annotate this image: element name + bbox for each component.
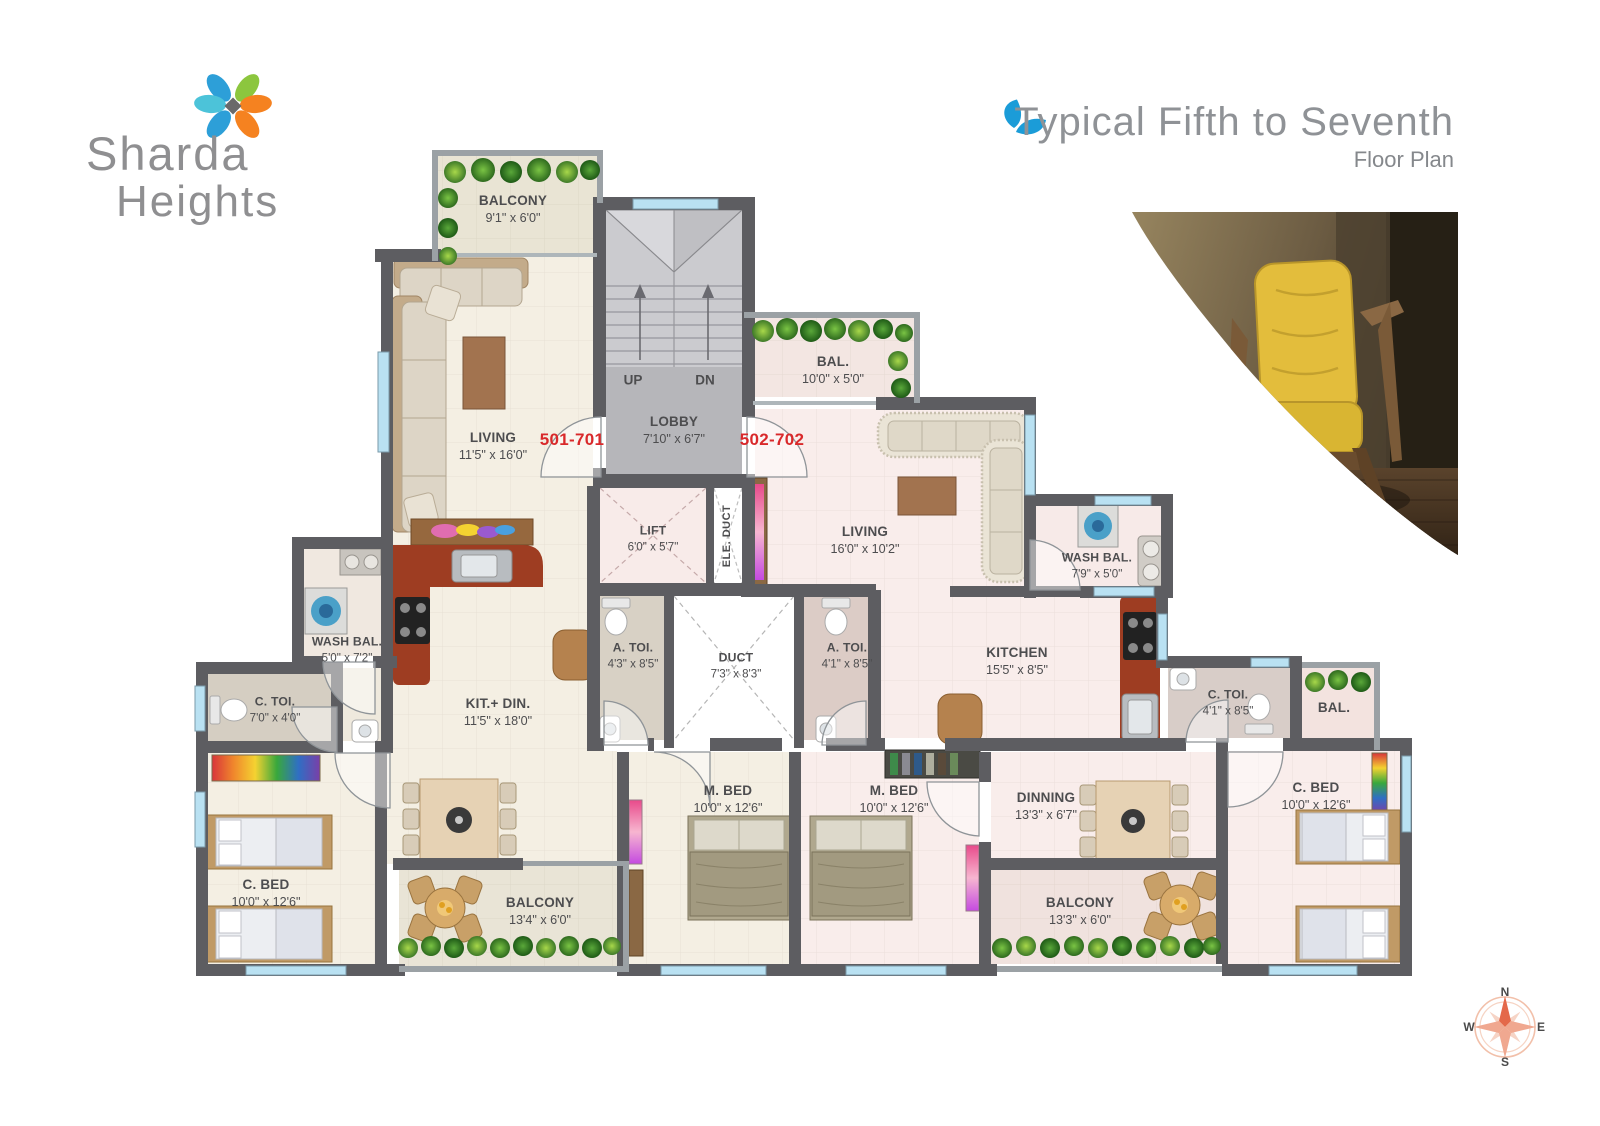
- brand-line1: Sharda: [86, 126, 279, 181]
- room-label-bal-502-right: BAL.: [1318, 699, 1350, 717]
- room-label-c-toi-501: C. TOI. 7'0" x 4'0": [250, 695, 301, 726]
- room-label-a-toi-502: A. TOI. 4'1" x 8'5": [822, 641, 873, 672]
- room-label-m-bed-502: M. BED 10'0" x 12'6": [859, 782, 928, 816]
- compass-west-label: W: [1463, 1020, 1474, 1034]
- room-label-wash-bal-502: WASH BAL. 7'9" x 5'0": [1062, 551, 1132, 582]
- room-label-kit-din-501: KIT.+ DIN. 11'5" x 18'0": [464, 695, 532, 729]
- compass-north-label: N: [1501, 985, 1510, 999]
- room-label-balcony-501-bottom: BALCONY 13'4" x 6'0": [506, 894, 574, 928]
- stairs-dn-label: DN: [695, 373, 715, 388]
- room-label-living-502: LIVING 16'0" x 10'2": [830, 523, 899, 557]
- unit-label-502-702: 502-702: [740, 430, 805, 450]
- room-label-c-toi-502: C. TOI. 4'1" x 8'5": [1203, 688, 1254, 719]
- room-label-duct: DUCT 7'3" x 8'3": [711, 651, 762, 682]
- room-label-living-501: LIVING 11'5" x 16'0": [459, 429, 527, 463]
- room-label-lift: LIFT 6'0" x 5'7": [628, 524, 679, 555]
- unit-label-501-701: 501-701: [540, 430, 605, 450]
- room-label-kitchen-502: KITCHEN 15'5" x 8'5": [986, 644, 1048, 678]
- page-title: Typical Fifth to Seventh Floor Plan: [1014, 100, 1454, 173]
- room-label-c-bed-502: C. BED 10'0" x 12'6": [1281, 779, 1350, 813]
- floor-plan-page: Sharda Heights Typical Fifth to Seventh …: [0, 0, 1600, 1126]
- room-label-balcony-502-bottom: BALCONY 13'3" x 6'0": [1046, 894, 1114, 928]
- room-label-m-bed-501: M. BED 10'0" x 12'6": [693, 782, 762, 816]
- compass-rose: [1474, 996, 1536, 1058]
- room-label-lobby: LOBBY 7'10" x 6'7": [643, 413, 705, 447]
- room-label-dinning-502: DINNING 13'3" x 6'7": [1015, 789, 1077, 823]
- compass-east-label: E: [1537, 1020, 1545, 1034]
- compass-south-label: S: [1501, 1055, 1509, 1069]
- room-label-bal-502-top: BAL. 10'0" x 5'0": [802, 353, 864, 387]
- room-label-balcony-501-top: BALCONY 9'1" x 6'0": [479, 192, 547, 226]
- room-label-wash-bal-501: WASH BAL. 5'0" x 7'2": [312, 635, 382, 666]
- brand-line2: Heights: [116, 177, 279, 227]
- page-title-sub: Floor Plan: [1014, 147, 1454, 173]
- brand-logo-text: Sharda Heights: [86, 126, 279, 227]
- room-label-ele-duct: ELE. DUCT: [721, 505, 733, 568]
- page-title-main: Typical Fifth to Seventh: [1014, 100, 1454, 145]
- stairs-up-label: UP: [624, 373, 643, 388]
- room-label-c-bed-501: C. BED 10'0" x 12'6": [231, 876, 300, 910]
- armchair-photo: [1130, 212, 1460, 562]
- room-label-a-toi-501: A. TOI. 4'3" x 8'5": [608, 641, 659, 672]
